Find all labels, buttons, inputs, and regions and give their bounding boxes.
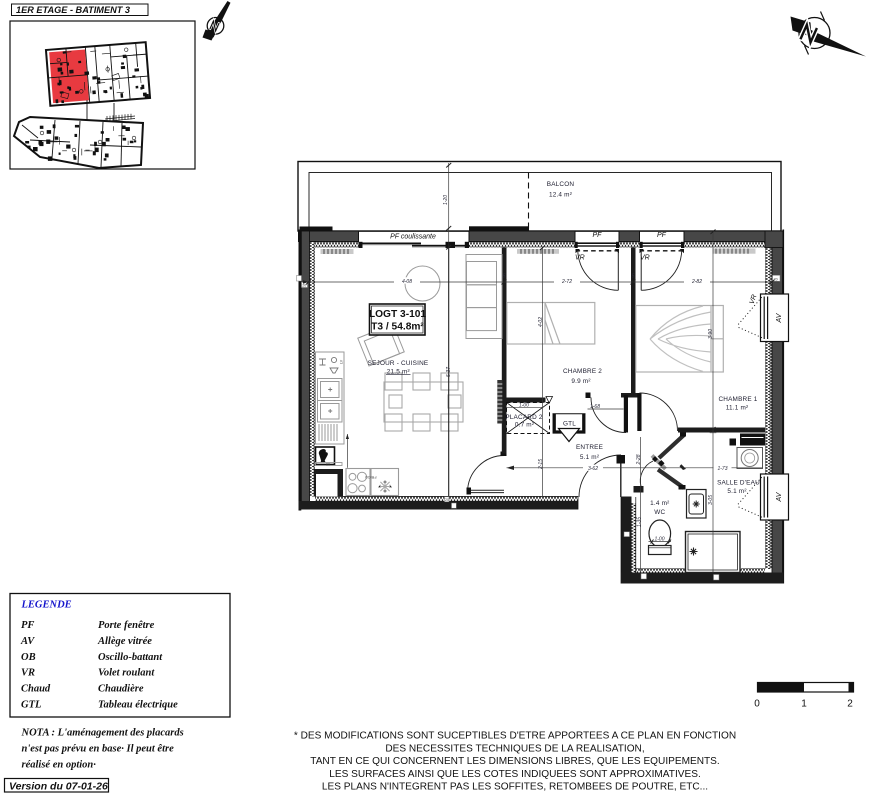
- svg-text:LES SURFACES AINSI QUE LES COT: LES SURFACES AINSI QUE LES COTES INDIQUE…: [329, 769, 701, 780]
- svg-text:T3 / 54.8m²: T3 / 54.8m²: [371, 322, 424, 333]
- svg-text:TANT EN CE QUI CONCERNENT LES: TANT EN CE QUI CONCERNENT LES DIMENSIONS…: [310, 756, 719, 767]
- svg-text:3-90: 3-90: [708, 329, 714, 339]
- svg-text:1: 1: [801, 699, 807, 710]
- svg-text:0: 0: [754, 699, 760, 710]
- svg-text:4-02: 4-02: [538, 317, 544, 327]
- svg-text:AV: AV: [776, 491, 783, 502]
- svg-text:CHAMBRE 2: CHAMBRE 2: [563, 368, 602, 375]
- svg-text:FRIGO: FRIGO: [365, 475, 377, 479]
- svg-text:20: 20: [302, 284, 306, 288]
- svg-text:ENTREE: ENTREE: [576, 444, 603, 451]
- svg-text:NOTA : L'aménagement des placa: NOTA : L'aménagement des placards: [21, 728, 184, 739]
- svg-text:LEGENDE: LEGENDE: [21, 600, 72, 611]
- svg-text:GTL: GTL: [563, 421, 576, 428]
- svg-text:5: 5: [503, 274, 506, 280]
- svg-text:2: 2: [847, 699, 853, 710]
- svg-text:PF coulissante: PF coulissante: [390, 233, 436, 240]
- svg-text:VR: VR: [749, 294, 759, 306]
- svg-text:Tableau électrique: Tableau électrique: [98, 700, 178, 711]
- svg-text:Chaudière: Chaudière: [98, 684, 144, 695]
- svg-text:2-72: 2-72: [561, 279, 572, 285]
- svg-text:BALCON: BALCON: [547, 181, 575, 188]
- svg-text:2-15: 2-15: [538, 459, 544, 470]
- svg-text:9.9 m²: 9.9 m²: [571, 378, 590, 385]
- svg-text:1-20: 1-20: [443, 195, 449, 205]
- svg-text:20: 20: [445, 498, 449, 502]
- svg-text:5.1 m²: 5.1 m²: [727, 488, 746, 495]
- svg-text:OB: OB: [21, 652, 36, 663]
- svg-text:VR: VR: [21, 668, 35, 679]
- svg-text:5: 5: [632, 274, 635, 280]
- svg-text:PF: PF: [593, 232, 603, 239]
- svg-text:SEJOUR - CUISINE: SEJOUR - CUISINE: [368, 360, 429, 367]
- svg-text:Chaud: Chaud: [21, 684, 51, 695]
- svg-text:* DES MODIFICATIONS SONT SUCEP: * DES MODIFICATIONS SONT SUCEPTIBLES D'E…: [294, 731, 736, 742]
- svg-text:n'est pas prévu en base· Il pe: n'est pas prévu en base· Il peut être: [22, 744, 175, 755]
- svg-text:Allège vitrée: Allège vitrée: [97, 636, 152, 647]
- svg-text:Volet roulant: Volet roulant: [98, 668, 155, 679]
- svg-text:GTL: GTL: [21, 700, 41, 711]
- svg-text:12.4 m²: 12.4 m²: [549, 192, 572, 199]
- svg-text:VR: VR: [575, 255, 585, 262]
- svg-text:LOGT 3-101: LOGT 3-101: [369, 309, 427, 320]
- svg-text:Version du 07-01-26: Version du 07-01-26: [9, 781, 108, 793]
- svg-text:5.1 m²: 5.1 m²: [580, 454, 599, 461]
- svg-text:PF: PF: [657, 232, 667, 239]
- svg-text:0.7 m²: 0.7 m²: [515, 422, 534, 429]
- svg-text:1-00: 1-00: [519, 402, 529, 408]
- svg-text:WC: WC: [654, 509, 665, 516]
- svg-text:réalisé en option·: réalisé en option·: [22, 760, 97, 771]
- svg-text:LES PLANS N'INTEGRENT PAS LES: LES PLANS N'INTEGRENT PAS LES SOFFITES, …: [322, 782, 708, 793]
- svg-text:AV: AV: [776, 312, 783, 323]
- svg-text:PLACARD 2: PLACARD 2: [505, 414, 543, 421]
- svg-text:Porte fenêtre: Porte fenêtre: [98, 620, 155, 631]
- svg-text:3-62: 3-62: [588, 466, 598, 472]
- svg-text:1-68: 1-68: [590, 404, 600, 410]
- svg-text:DES NECESSITES TECHNIQUES DE L: DES NECESSITES TECHNIQUES DE LA REALISAT…: [385, 743, 644, 754]
- svg-text:60: 60: [326, 463, 330, 467]
- svg-text:Oscillo-battant: Oscillo-battant: [98, 652, 163, 663]
- svg-text:5-37: 5-37: [446, 367, 452, 377]
- svg-text:1.4 m²: 1.4 m²: [650, 500, 669, 507]
- svg-text:CHAMBRE 1: CHAMBRE 1: [718, 396, 757, 403]
- svg-text:4-08: 4-08: [402, 279, 412, 285]
- svg-text:1-35: 1-35: [636, 517, 642, 527]
- svg-text:21.5 m²: 21.5 m²: [387, 368, 410, 375]
- svg-text:LV: LV: [340, 359, 344, 364]
- svg-text:1ER ETAGE - BATIMENT 3: 1ER ETAGE - BATIMENT 3: [16, 5, 130, 15]
- svg-text:1-00: 1-00: [654, 536, 664, 542]
- svg-text:PF: PF: [21, 620, 34, 631]
- svg-text:1-73: 1-73: [717, 466, 727, 472]
- svg-text:3-05: 3-05: [708, 495, 714, 505]
- svg-text:SALLE D'EAU: SALLE D'EAU: [717, 479, 760, 486]
- svg-text:2-82: 2-82: [691, 279, 702, 285]
- svg-text:11.1 m²: 11.1 m²: [726, 405, 749, 412]
- svg-text:2-28: 2-28: [636, 454, 642, 465]
- svg-text:AV: AV: [20, 636, 35, 647]
